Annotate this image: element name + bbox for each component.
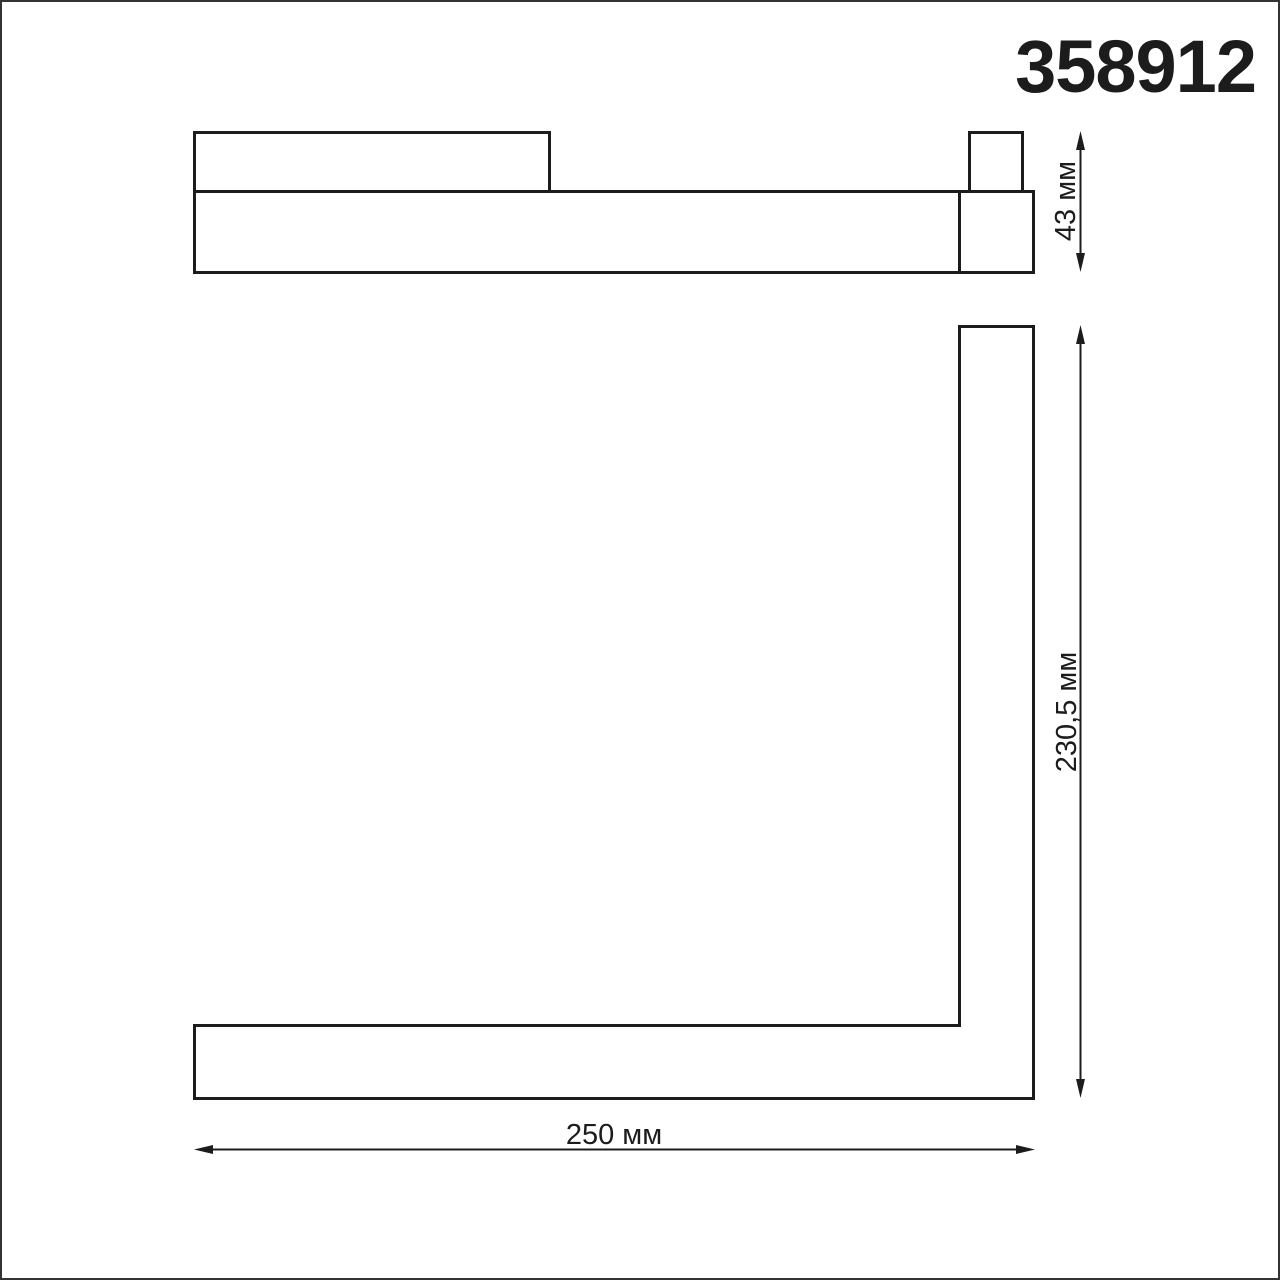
- arrowhead-up-icon: [1076, 325, 1085, 344]
- arrowhead-up-icon: [1076, 131, 1085, 150]
- technical-drawing: 358912 43 мм 230,5 мм: [0, 0, 1280, 1280]
- dimension-label: 43 мм: [1050, 161, 1082, 241]
- dimension-label: 250 мм: [566, 1119, 662, 1151]
- drawing-canvas: 358912 43 мм 230,5 мм: [0, 0, 1280, 1280]
- arrowhead-right-icon: [1016, 1145, 1035, 1154]
- arrowhead-down-icon: [1076, 1079, 1085, 1098]
- side-view-main-bar: [195, 192, 1034, 273]
- side-view: [195, 133, 1034, 273]
- article-number: 358912: [1015, 25, 1256, 108]
- dimension-vertical-length: 230,5 мм: [1051, 325, 1085, 1098]
- front-view-l-profile: [195, 327, 1034, 1099]
- dimension-horizontal-length: 250 мм: [194, 1119, 1035, 1154]
- dimension-profile-height: 43 мм: [1050, 131, 1085, 272]
- side-view-connector-block: [970, 133, 1023, 192]
- side-view-raised-section: [195, 133, 550, 192]
- dimension-label: 230,5 мм: [1051, 652, 1083, 773]
- arrowhead-down-icon: [1076, 253, 1085, 272]
- arrowhead-left-icon: [194, 1145, 213, 1154]
